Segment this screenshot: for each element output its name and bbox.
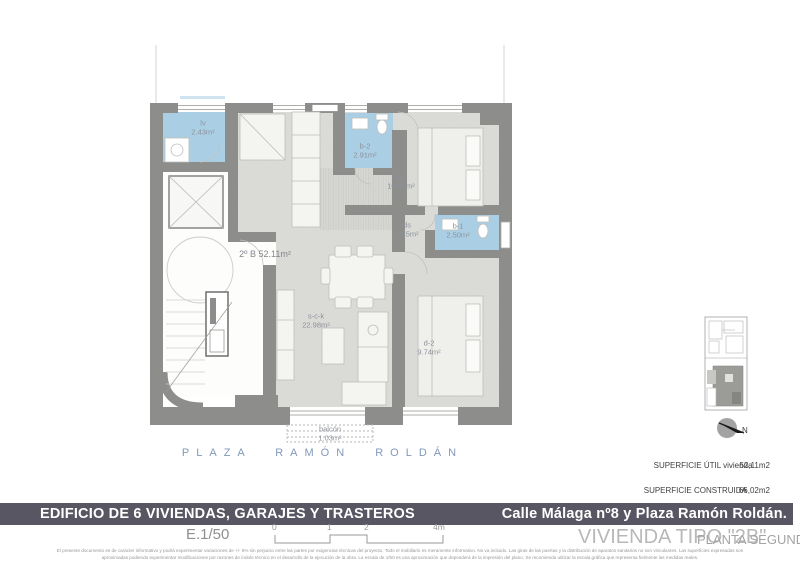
floor-level-title: PLANTA SEGUNDA bbox=[697, 532, 800, 547]
scale-label: E.1/50 bbox=[186, 526, 229, 543]
superficie-construida: SUPERFICIE CONSTRUIDA66,02m2 bbox=[644, 486, 770, 495]
sink-b2 bbox=[352, 118, 368, 129]
scale-tick-0: 0 bbox=[272, 522, 277, 532]
window-sill bbox=[180, 96, 225, 99]
unit-label: 2º B 52.11m² bbox=[239, 249, 291, 261]
room-label-b1: b-1 2.50m² bbox=[446, 222, 469, 241]
washing-machine bbox=[165, 138, 189, 162]
pillow bbox=[466, 304, 480, 336]
floor-plan-sheet: lv 2.43m² b-2 2.91m² d-1 10.00m² ds 1.45… bbox=[0, 0, 800, 566]
chair bbox=[357, 297, 373, 308]
title-banner: EDIFICIO DE 6 VIVIENDAS, GARAJES Y TRAST… bbox=[0, 503, 793, 525]
pillow bbox=[466, 340, 480, 372]
north-arrow bbox=[717, 418, 744, 438]
coffee-table bbox=[322, 328, 344, 364]
room-label-sck: s-c-k 22.98m² bbox=[302, 312, 330, 331]
kitchen-island bbox=[342, 382, 386, 405]
scale-bar bbox=[275, 535, 443, 543]
superficie-util: SUPERFICIE ÚTIL vivienda52,11m2 bbox=[654, 461, 770, 470]
chair bbox=[357, 246, 373, 257]
scale-tick-1: 1 bbox=[327, 522, 332, 532]
toilet-b2 bbox=[377, 120, 387, 134]
dining-table bbox=[329, 255, 385, 299]
room-label-balcon: balcón 1.03m² bbox=[318, 425, 341, 444]
sofa bbox=[277, 290, 294, 380]
disclaimer-line-1: El presente documento es de carácter inf… bbox=[0, 548, 800, 554]
scale-tick-4m: 4m bbox=[433, 522, 445, 532]
party-wall-lines bbox=[156, 45, 504, 103]
chair bbox=[335, 297, 351, 308]
room-label-d2: d-2 9.74m² bbox=[417, 339, 440, 358]
chair bbox=[335, 246, 351, 257]
elevator bbox=[169, 176, 223, 228]
pillow bbox=[466, 170, 480, 200]
banner-address: Calle Málaga nº8 y Plaza Ramón Roldán. bbox=[502, 506, 787, 522]
room-label-ds: ds 1.45m² bbox=[395, 221, 418, 240]
chair bbox=[321, 268, 330, 284]
banner-building-title: EDIFICIO DE 6 VIVIENDAS, GARAJES Y TRAST… bbox=[40, 506, 415, 522]
room-label-lv: lv 2.43m² bbox=[191, 119, 214, 138]
chair bbox=[384, 268, 393, 284]
pillow bbox=[466, 136, 480, 166]
key-plan bbox=[705, 317, 747, 410]
toilet-b1 bbox=[478, 224, 488, 238]
room-label-d1: d-1 10.00m² bbox=[387, 173, 415, 192]
disclaimer-line-2: aproximadas pudiendo experimentar modifi… bbox=[0, 555, 800, 561]
floor-plan-drawing bbox=[0, 0, 800, 566]
window-slot-right bbox=[501, 222, 510, 248]
street-name: PLAZA RAMÓN ROLDÁN bbox=[140, 447, 505, 459]
scale-tick-2: 2 bbox=[364, 522, 369, 532]
wardrobe bbox=[292, 112, 320, 227]
north-label: N bbox=[742, 426, 748, 435]
room-label-b2: b-2 2.91m² bbox=[353, 142, 376, 161]
hall-nook-floor bbox=[320, 168, 392, 230]
window-slot bbox=[312, 105, 338, 112]
